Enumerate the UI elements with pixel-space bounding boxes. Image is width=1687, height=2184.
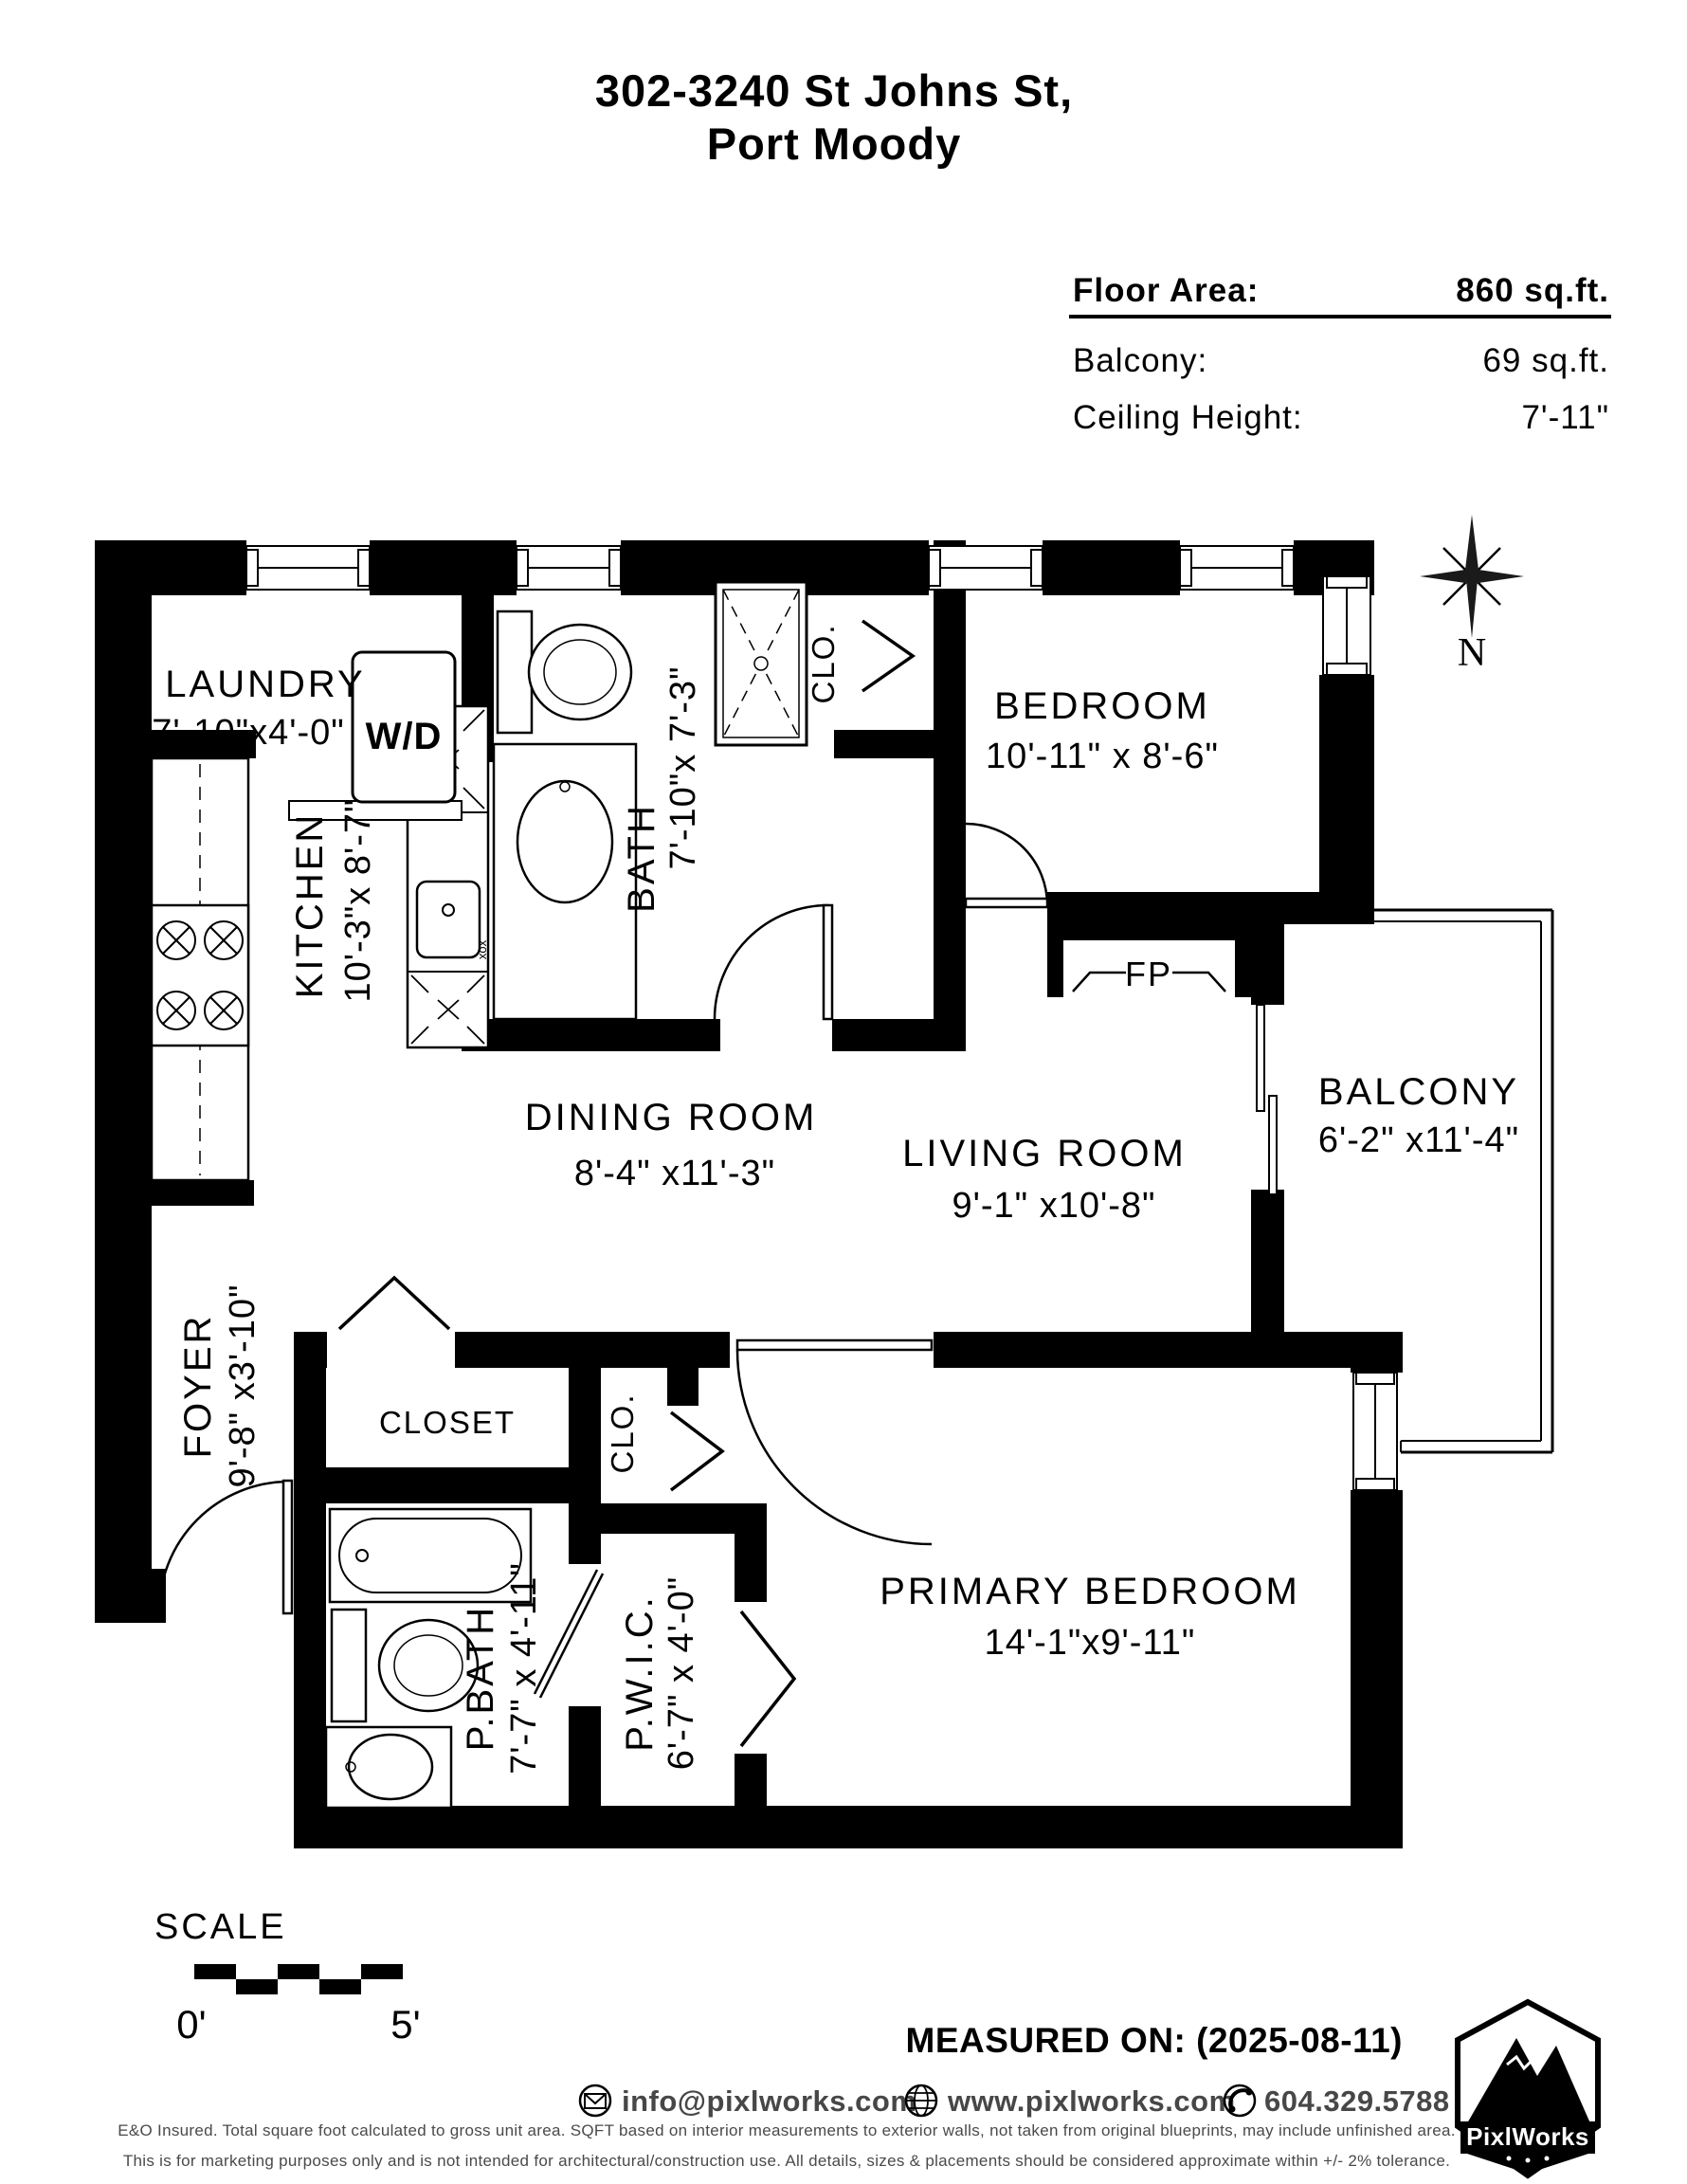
pbath-sink [326,1727,451,1808]
ceiling-label: Ceiling Height: [1073,399,1303,436]
info-divider [1069,315,1611,318]
ceiling-value: 7'-11" [1521,399,1609,436]
website-text: www.pixlworks.com [947,2084,1236,2118]
measured-on: MEASURED ON: (2025-08-11) [906,2021,1403,2060]
kitchen-label: KITCHEN [289,812,331,999]
pbath-dims: 7'-7" x 4'-11" [504,1562,544,1774]
kitchen-dims: 10'-3"x 8'-7" [338,798,378,1002]
window-primary-east [1353,1373,1397,1490]
fireplace-label: FP [1125,955,1172,993]
scale-bar: SCALE 0' 5' [154,1907,421,2047]
door-bath [715,905,832,1019]
disclaimer-line1: E&O Insured. Total square foot calculate… [118,2121,1456,2139]
website-icon [906,2085,936,2116]
pwic-label: P.W.I.C. [619,1594,661,1752]
pbath-toilet [332,1610,478,1721]
bifold-door-clo-mid-icon [671,1412,722,1490]
bedroom-dims: 10'-11" x 8'-6" [986,737,1219,776]
clo-mid-label: CLO. [605,1392,640,1473]
living-dims: 9'-1" x10'-8" [952,1186,1155,1226]
balcony-room-dims: 6'-2" x11'-4" [1318,1120,1519,1160]
bifold-door-closet-icon [339,1278,449,1329]
scale-max: 5' [390,2002,420,2047]
bedroom-label: BEDROOM [994,685,1210,727]
door-entry [159,1481,292,1613]
shower [716,582,807,745]
clo-top-label: CLO. [806,623,841,703]
balcony-value: 69 sq.ft. [1482,342,1609,379]
foyer-label: FOYER [177,1314,219,1459]
page-title-line2: Port Moody [707,118,961,169]
compass-rose-icon: N [1420,515,1524,675]
floor-area-value: 860 sq.ft. [1456,272,1609,309]
floor-area-label: Floor Area: [1073,272,1259,309]
living-label: LIVING ROOM [902,1133,1187,1174]
washer-dryer: W/D [353,652,455,802]
contact-row: info@pixlworks.com www.pixlworks.com 604… [580,2084,1450,2118]
door-bedroom [966,824,1047,907]
page-title-line1: 302-3240 St Johns St, [595,65,1073,116]
window-laundry [246,546,370,590]
foyer-dims: 9'-8" x3'-10" [223,1283,263,1487]
balcony-room-label: BALCONY [1318,1071,1519,1113]
pbath-tub [330,1509,531,1602]
bifold-door-pwic-icon [741,1611,794,1746]
dining-dims: 8'-4" x11'-3" [574,1154,775,1193]
primary-dims: 14'-1"x9'-11" [985,1623,1196,1663]
window-bedroom-1 [929,546,1043,590]
phone-icon [1224,2085,1255,2116]
bath-toilet [498,611,631,733]
disclaimer-line2: This is for marketing purposes only and … [123,2152,1450,2170]
window-bedroom-east [1323,576,1370,675]
balcony-rails [1284,910,1552,1452]
pixlworks-logo: PixlWorks [1458,2002,1598,2175]
fireplace: FP [1047,924,1251,999]
closet-label: CLOSET [379,1405,516,1440]
primary-label: PRIMARY BEDROOM [880,1571,1300,1612]
laundry-dims: 7'-10"x4'-0" [152,713,344,753]
bath-label: BATH [621,803,662,913]
bath-dims: 7'-10"x 7'-3" [663,665,703,869]
window-bedroom-2 [1180,546,1294,590]
dining-label: DINING ROOM [525,1097,818,1138]
kitchen-sink: xox [417,882,489,959]
bath-vanity [494,744,636,1019]
phone-text: 604.329.5788 [1264,2084,1450,2118]
floorplan-page: 302-3240 St Johns St, Port Moody Floor A… [0,0,1687,2184]
stove [152,905,248,1046]
washer-dryer-label: W/D [366,716,443,757]
logo-text: PixlWorks [1466,2122,1589,2151]
info-panel: Floor Area: 860 sq.ft. Balcony: 69 sq.ft… [1069,272,1611,436]
email-icon [580,2085,610,2116]
scale-label: SCALE [154,1907,287,1947]
kitchen-faucet-marks: xox [475,939,489,959]
window-bath [517,546,621,590]
email-text: info@pixlworks.com [622,2084,916,2118]
laundry-label: LAUNDRY [165,664,365,705]
pwic-dims: 6'-7" x 4'-0" [662,1576,701,1770]
sliding-door-balcony [1257,1005,1277,1194]
balcony-label: Balcony: [1073,342,1207,379]
pbath-label: P.BATH [460,1605,501,1751]
bifold-door-clo-top-icon [862,621,913,691]
door-pbath [535,1570,603,1698]
compass-north-label: N [1458,631,1486,675]
scale-min: 0' [176,2002,206,2047]
